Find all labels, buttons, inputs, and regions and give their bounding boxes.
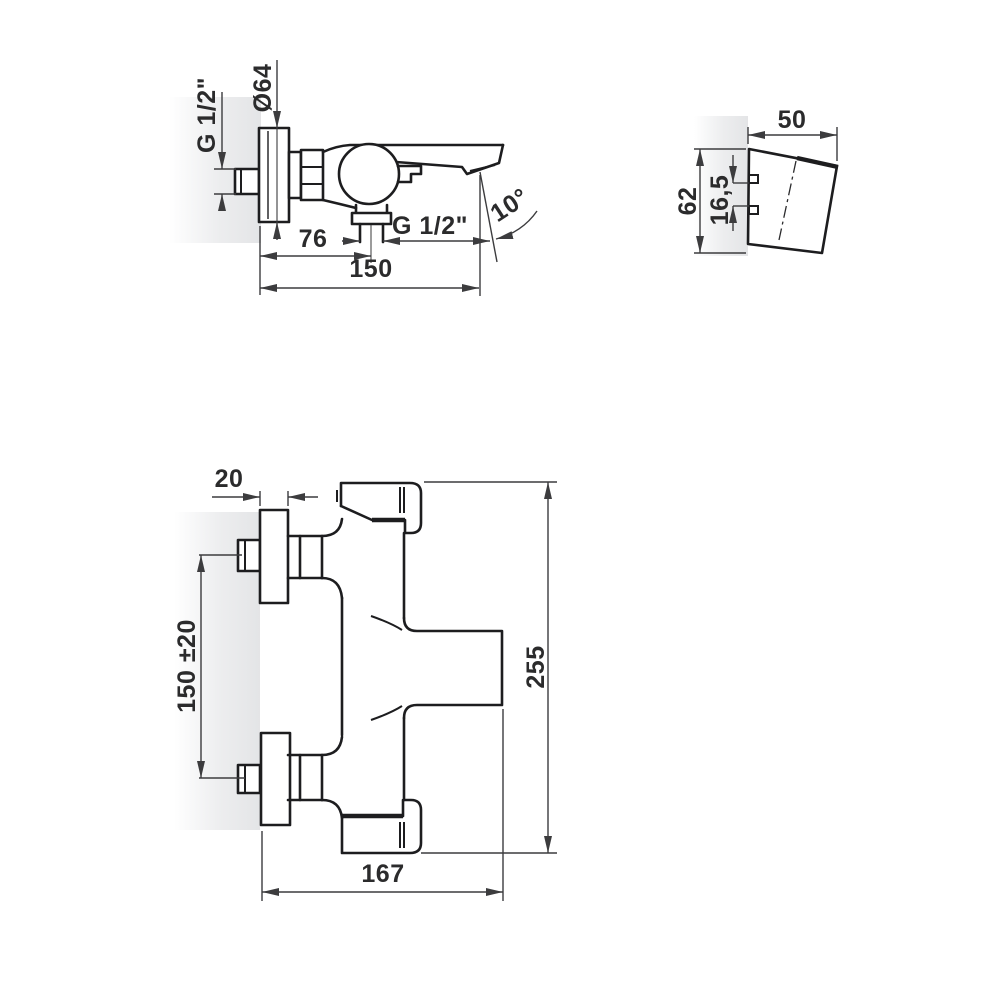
lower-handle	[342, 800, 421, 853]
dim-label-outlet-thread: G 1/2"	[392, 212, 468, 240]
upper-lever-edge	[341, 506, 372, 520]
lower-flange	[261, 733, 290, 825]
spout-front	[404, 618, 502, 718]
faucet-dimension-drawing: G 1/2" Ø64 76 G 1/2" 150	[0, 0, 1000, 1000]
dim-label-spout-angle: 10°	[486, 183, 534, 228]
dim-label-pin-spacing: 16,5	[706, 175, 734, 226]
dim-flange-depth: 20	[212, 465, 318, 506]
dim-spout-angle: 10°	[480, 172, 537, 262]
holder-view: 50 62 16,5	[674, 106, 838, 256]
wall-flange	[259, 128, 289, 222]
holder-part	[748, 149, 838, 253]
dim-label-outlet-offset: 76	[299, 225, 328, 253]
mounting-nut	[301, 150, 323, 200]
dim-label-total-length: 150	[349, 255, 392, 283]
front-view-part	[238, 483, 502, 853]
side-view-part	[235, 128, 503, 263]
outlet-collar	[352, 213, 391, 224]
dim-label-wall-thread: G 1/2"	[193, 77, 221, 153]
dim-label-flange-depth: 20	[215, 465, 244, 493]
technical-drawing-page: G 1/2" Ø64 76 G 1/2" 150	[0, 0, 1000, 1000]
dim-label-holder-width: 50	[778, 106, 807, 134]
lever-tab	[398, 166, 421, 182]
dim-label-flange-diameter: Ø64	[249, 64, 277, 113]
dim-total-width: 167	[262, 709, 503, 901]
side-view: G 1/2" Ø64 76 G 1/2" 150	[169, 60, 537, 296]
front-view: 20 150 ±20 255 167	[173, 465, 557, 901]
upper-flange	[260, 510, 288, 603]
lower-connector-hex	[238, 765, 260, 793]
upper-handle	[341, 483, 421, 533]
dim-label-connection-spacing: 150 ±20	[173, 619, 201, 713]
cartridge-body	[339, 144, 399, 204]
dim-label-total-width: 167	[361, 860, 404, 888]
wall-connector-hex	[235, 169, 259, 194]
dim-label-total-height: 255	[522, 645, 550, 688]
dim-label-holder-height: 62	[674, 187, 702, 216]
dim-total-height: 255	[421, 482, 557, 853]
